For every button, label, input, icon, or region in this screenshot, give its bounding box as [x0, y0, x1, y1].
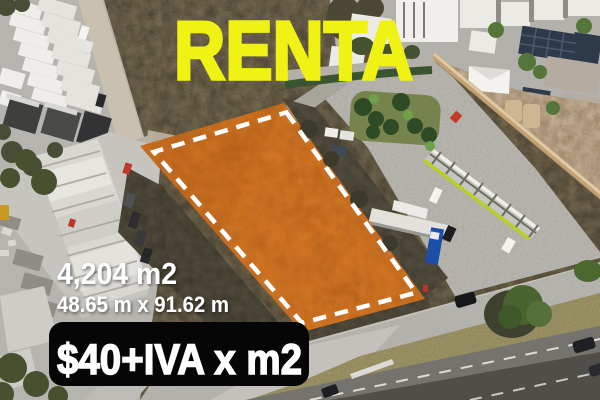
svg-text:RENTA: RENTA	[174, 4, 413, 97]
svg-text:4,204 m2: 4,204 m2	[57, 256, 177, 291]
svg-text:$40+IVA x m2: $40+IVA x m2	[57, 336, 302, 384]
svg-text:48.65 m x 91.62 m: 48.65 m x 91.62 m	[57, 292, 229, 317]
